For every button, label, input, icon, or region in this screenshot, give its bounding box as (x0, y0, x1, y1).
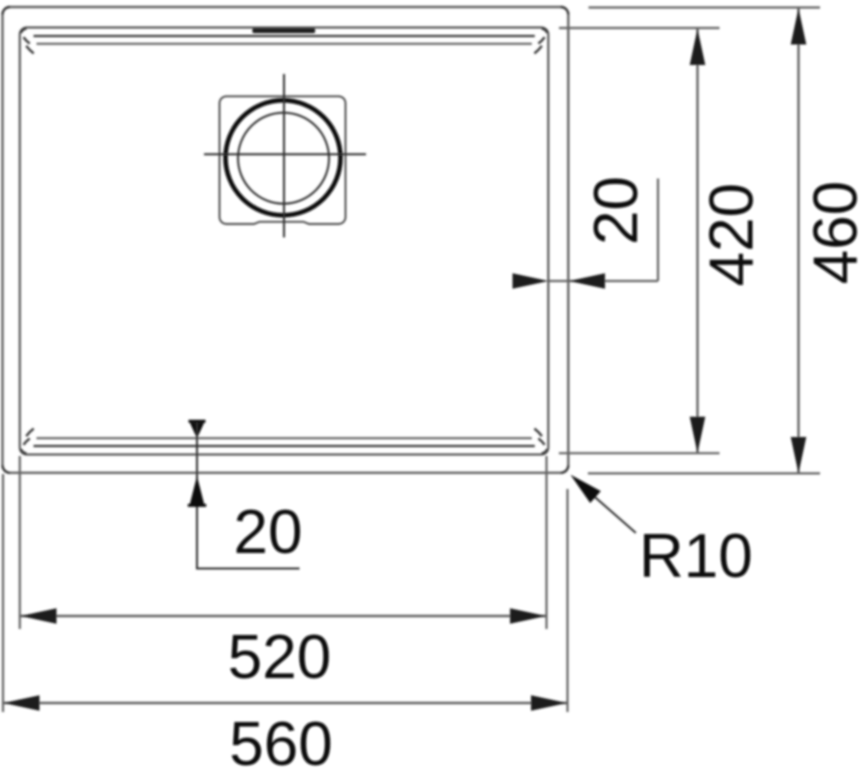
svg-text:420: 420 (698, 183, 767, 286)
svg-text:R10: R10 (639, 522, 753, 591)
svg-text:20: 20 (234, 498, 303, 567)
svg-text:460: 460 (802, 181, 861, 284)
svg-text:20: 20 (582, 176, 651, 245)
svg-text:560: 560 (229, 710, 332, 778)
svg-text:520: 520 (228, 623, 331, 692)
